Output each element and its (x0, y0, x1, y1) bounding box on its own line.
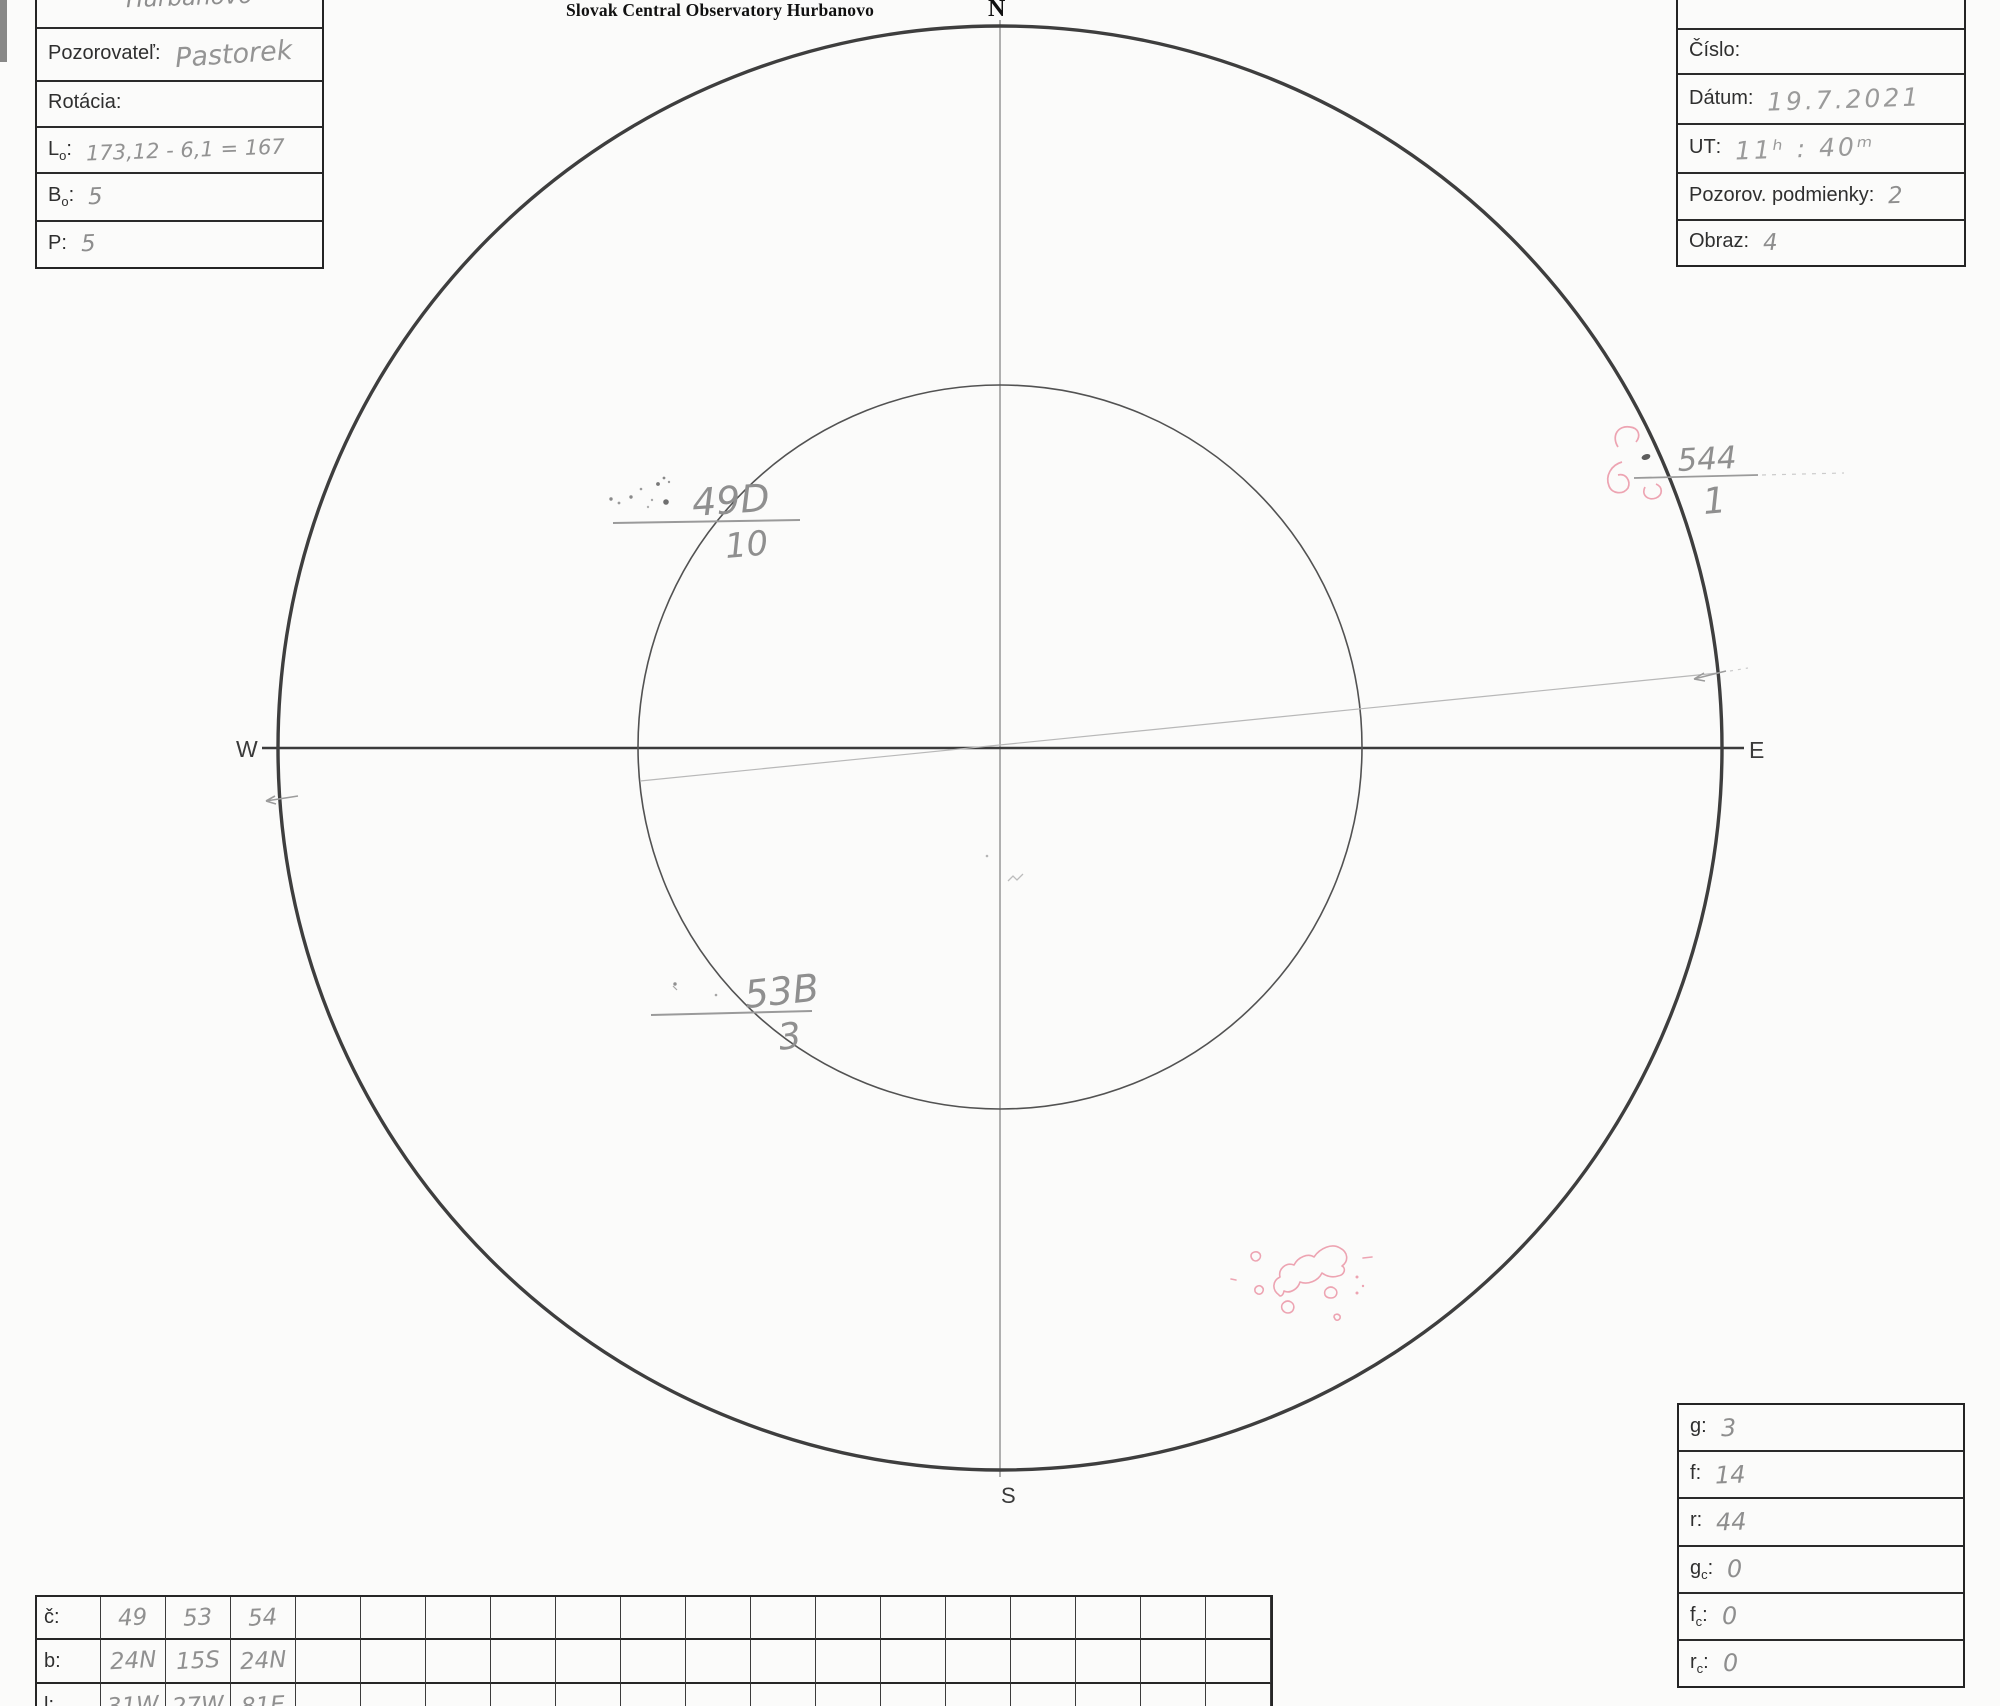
table-row-label: b: (37, 1640, 101, 1684)
east-limb-faint-mark (1730, 668, 1748, 671)
red-pencil-outline (1255, 1286, 1263, 1294)
sunspot-dot (656, 482, 660, 486)
table-cell (1011, 1640, 1076, 1684)
red-pencil-region-south (1231, 1246, 1372, 1320)
group-designation: 53B (742, 965, 821, 1017)
sunspot-group-544: 544 1 (1608, 427, 1844, 523)
red-pencil-dot (1362, 1285, 1364, 1287)
sunspot-dot (663, 477, 666, 480)
field-label: r: (1690, 1509, 1702, 1534)
sunspot-dot (1641, 453, 1651, 461)
red-pencil-outline (1325, 1287, 1337, 1298)
group-underline-faint (1762, 473, 1844, 475)
table-value-handwritten: 27W (171, 1691, 224, 1706)
table-row-label: č: (37, 1597, 101, 1640)
red-pencil-outline (1644, 484, 1661, 499)
table-cell (1076, 1684, 1141, 1706)
table-cell (1206, 1640, 1271, 1684)
table-cell (1206, 1597, 1271, 1640)
field-label: gc: (1690, 1557, 1713, 1582)
sunspot-dot (640, 488, 643, 491)
table-cell (621, 1597, 686, 1640)
table-cell (556, 1684, 621, 1706)
table-value-handwritten: 81E (240, 1691, 285, 1706)
table-cell (946, 1597, 1011, 1640)
table-cell (491, 1597, 556, 1640)
table-cell: 53 (166, 1597, 231, 1640)
field-label: g: (1690, 1415, 1707, 1440)
red-pencil-dot (1356, 1292, 1359, 1295)
sunspot-dot (715, 994, 718, 997)
table-cell (816, 1597, 881, 1640)
table-cell (491, 1640, 556, 1684)
table-cell (491, 1684, 556, 1706)
table-cell (686, 1684, 751, 1706)
table-cell: 54 (231, 1597, 296, 1640)
table-value-handwritten: 49 (118, 1604, 149, 1631)
table-cell (426, 1640, 491, 1684)
west-limb-arrow-mark (266, 796, 298, 804)
table-cell (881, 1640, 946, 1684)
table-cell (816, 1684, 881, 1706)
table-value-handwritten: 53 (183, 1604, 214, 1631)
table-value-handwritten: 54 (248, 1604, 279, 1631)
table-cell (426, 1684, 491, 1706)
red-pencil-outline (1363, 1257, 1372, 1258)
compass-south-label: S (1001, 1483, 1016, 1508)
table-value-handwritten: 24N (239, 1647, 287, 1675)
table-cell (1011, 1684, 1076, 1706)
table-cell (361, 1684, 426, 1706)
field-value-handwritten: 0 (1721, 1602, 1737, 1631)
table-cell (296, 1684, 361, 1706)
red-pencil-outline (1251, 1252, 1260, 1261)
red-pencil-dot (1356, 1276, 1359, 1279)
sunspot-dot (651, 499, 653, 501)
sunspot-group-53B: 53B 3 (651, 965, 821, 1059)
group-designation: 544 (1677, 440, 1738, 479)
table-cell (686, 1640, 751, 1684)
field-value-handwritten: 0 (1727, 1555, 1743, 1584)
group-spot-count: 3 (776, 1015, 804, 1059)
field-value-handwritten: 44 (1716, 1507, 1748, 1536)
sunspot-dot (618, 502, 621, 505)
table-value-handwritten: 15S (175, 1647, 220, 1675)
sunspot-group-49D: 49D 10 (609, 476, 800, 567)
table-cell (621, 1640, 686, 1684)
table-cell: 27W (166, 1684, 231, 1706)
red-pencil-outline (1608, 462, 1629, 493)
table-row-label: l: (37, 1684, 101, 1706)
table-cell (751, 1640, 816, 1684)
east-limb-arrow-mark (1694, 671, 1726, 681)
red-pencil-outline (1231, 1279, 1236, 1280)
solar-observation-sheet: Slovak Central Observatory Hurbanovo Mie… (0, 0, 2000, 1706)
compass-east-label: E (1749, 737, 1764, 763)
table-cell (1076, 1597, 1141, 1640)
field-r: r: 44 (1679, 1497, 1963, 1544)
pencil-scribble (1008, 874, 1023, 881)
groups-table: č: 49 53 54 b: 24N 15S 24N l: 31W 27W 81… (35, 1595, 1273, 1706)
table-cell (361, 1597, 426, 1640)
pencil-speck (986, 855, 989, 858)
table-cell (426, 1597, 491, 1640)
table-value-handwritten: 24N (109, 1647, 157, 1675)
sunspot-dot (673, 986, 677, 990)
field-rc: rc: 0 (1679, 1639, 1963, 1686)
red-pencil-outline (1334, 1314, 1340, 1320)
sunspot-dot (629, 495, 632, 498)
table-cell (1141, 1640, 1206, 1684)
table-cell (1141, 1597, 1206, 1640)
table-cell (621, 1684, 686, 1706)
table-cell (946, 1684, 1011, 1706)
table-cell: 81E (231, 1684, 296, 1706)
table-cell (881, 1684, 946, 1706)
table-cell (1076, 1640, 1141, 1684)
table-cell (946, 1640, 1011, 1684)
group-spot-count: 1 (1701, 480, 1727, 523)
group-spot-count: 10 (723, 523, 770, 567)
field-value-handwritten: 0 (1722, 1649, 1738, 1678)
table-cell (296, 1640, 361, 1684)
table-cell: 15S (166, 1640, 231, 1684)
pencil-equator-line (640, 673, 1718, 781)
red-pencil-outline (1615, 427, 1638, 447)
field-label: rc: (1690, 1651, 1709, 1676)
counts-box: g: 3 f: 14 r: 44 gc: 0 fc: 0 rc: 0 (1677, 1403, 1965, 1688)
sunspot-dot (673, 982, 676, 985)
table-cell (556, 1640, 621, 1684)
compass-north-label: N (988, 0, 1006, 22)
table-cell (361, 1640, 426, 1684)
field-f: f: 14 (1679, 1450, 1963, 1497)
sunspot-dot (647, 506, 649, 508)
table-value-handwritten: 31W (106, 1691, 159, 1706)
field-label: fc: (1690, 1604, 1708, 1629)
table-cell (296, 1597, 361, 1640)
table-cell (556, 1597, 621, 1640)
table-cell: 31W (101, 1684, 166, 1706)
field-g: g: 3 (1679, 1405, 1963, 1450)
table-cell (1141, 1684, 1206, 1706)
sunspot-dot (609, 497, 612, 500)
table-cell: 24N (231, 1640, 296, 1684)
field-fc: fc: 0 (1679, 1592, 1963, 1639)
table-cell: 49 (101, 1597, 166, 1640)
table-cell (686, 1597, 751, 1640)
table-cell (1011, 1597, 1076, 1640)
group-designation: 49D (691, 476, 772, 525)
table-cell (816, 1640, 881, 1684)
sunspot-dot (663, 499, 669, 505)
table-cell: 24N (101, 1640, 166, 1684)
field-value-handwritten: 3 (1720, 1413, 1736, 1442)
table-cell (1206, 1684, 1271, 1706)
field-value-handwritten: 14 (1715, 1460, 1747, 1489)
sunspot-dot (668, 481, 670, 483)
red-pencil-outline (1282, 1301, 1294, 1313)
table-cell (751, 1597, 816, 1640)
table-cell (751, 1684, 816, 1706)
field-gc: gc: 0 (1679, 1545, 1963, 1592)
table-cell (881, 1597, 946, 1640)
compass-west-label: W (236, 736, 258, 762)
field-label: f: (1690, 1462, 1701, 1487)
